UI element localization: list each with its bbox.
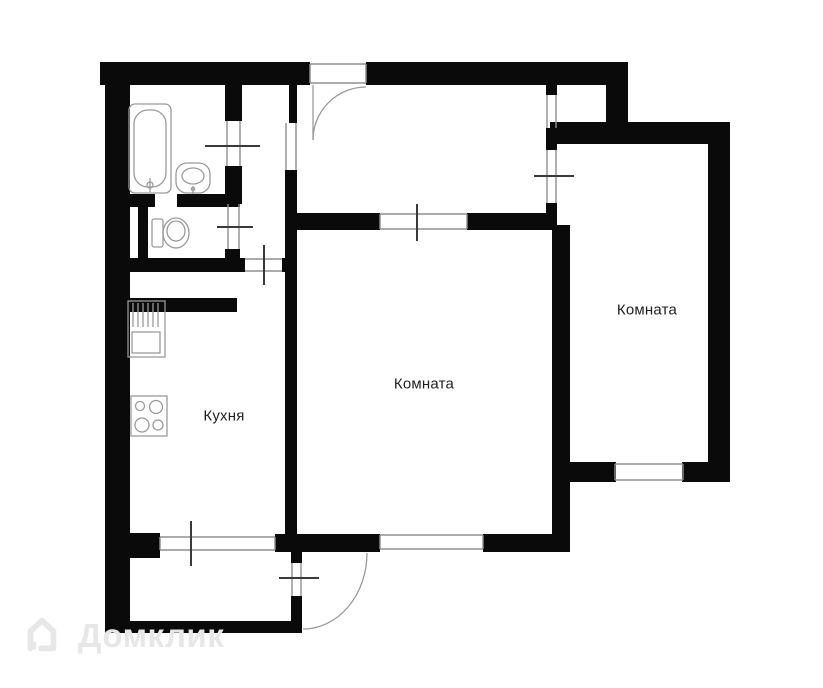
- bathroom-door-channel: [227, 121, 240, 166]
- bathtub-icon: [129, 104, 171, 193]
- room-label-living-room: Комната: [394, 376, 454, 393]
- walls-layer: [100, 62, 730, 633]
- entrance-door-frame: [310, 64, 366, 83]
- toilet-icon: [152, 218, 189, 248]
- wash-sink-icon: [176, 163, 210, 194]
- corridor-opening: [286, 123, 296, 170]
- right-room-window: [615, 464, 683, 480]
- balcony-door-channel: [292, 563, 301, 596]
- stove-icon: [131, 396, 167, 436]
- floor-plan-drawing: [0, 0, 823, 688]
- room-label-kitchen: Кухня: [203, 408, 244, 425]
- kitchen-window: [160, 537, 275, 550]
- balcony-door-arc: [303, 553, 367, 629]
- watermark-brand-text: Домклик: [78, 619, 224, 652]
- watermark-domclick: Домклик: [18, 614, 224, 656]
- floor-plan: Кухня Комната Комната Домклик: [0, 0, 823, 688]
- living-room-doorway: [380, 214, 467, 229]
- entrance-door-arc: [313, 85, 366, 140]
- tick-marks-layer: [191, 146, 574, 578]
- house-icon: [18, 614, 64, 656]
- living-room-window: [380, 535, 483, 549]
- room-label-right-room: Комната: [617, 302, 677, 319]
